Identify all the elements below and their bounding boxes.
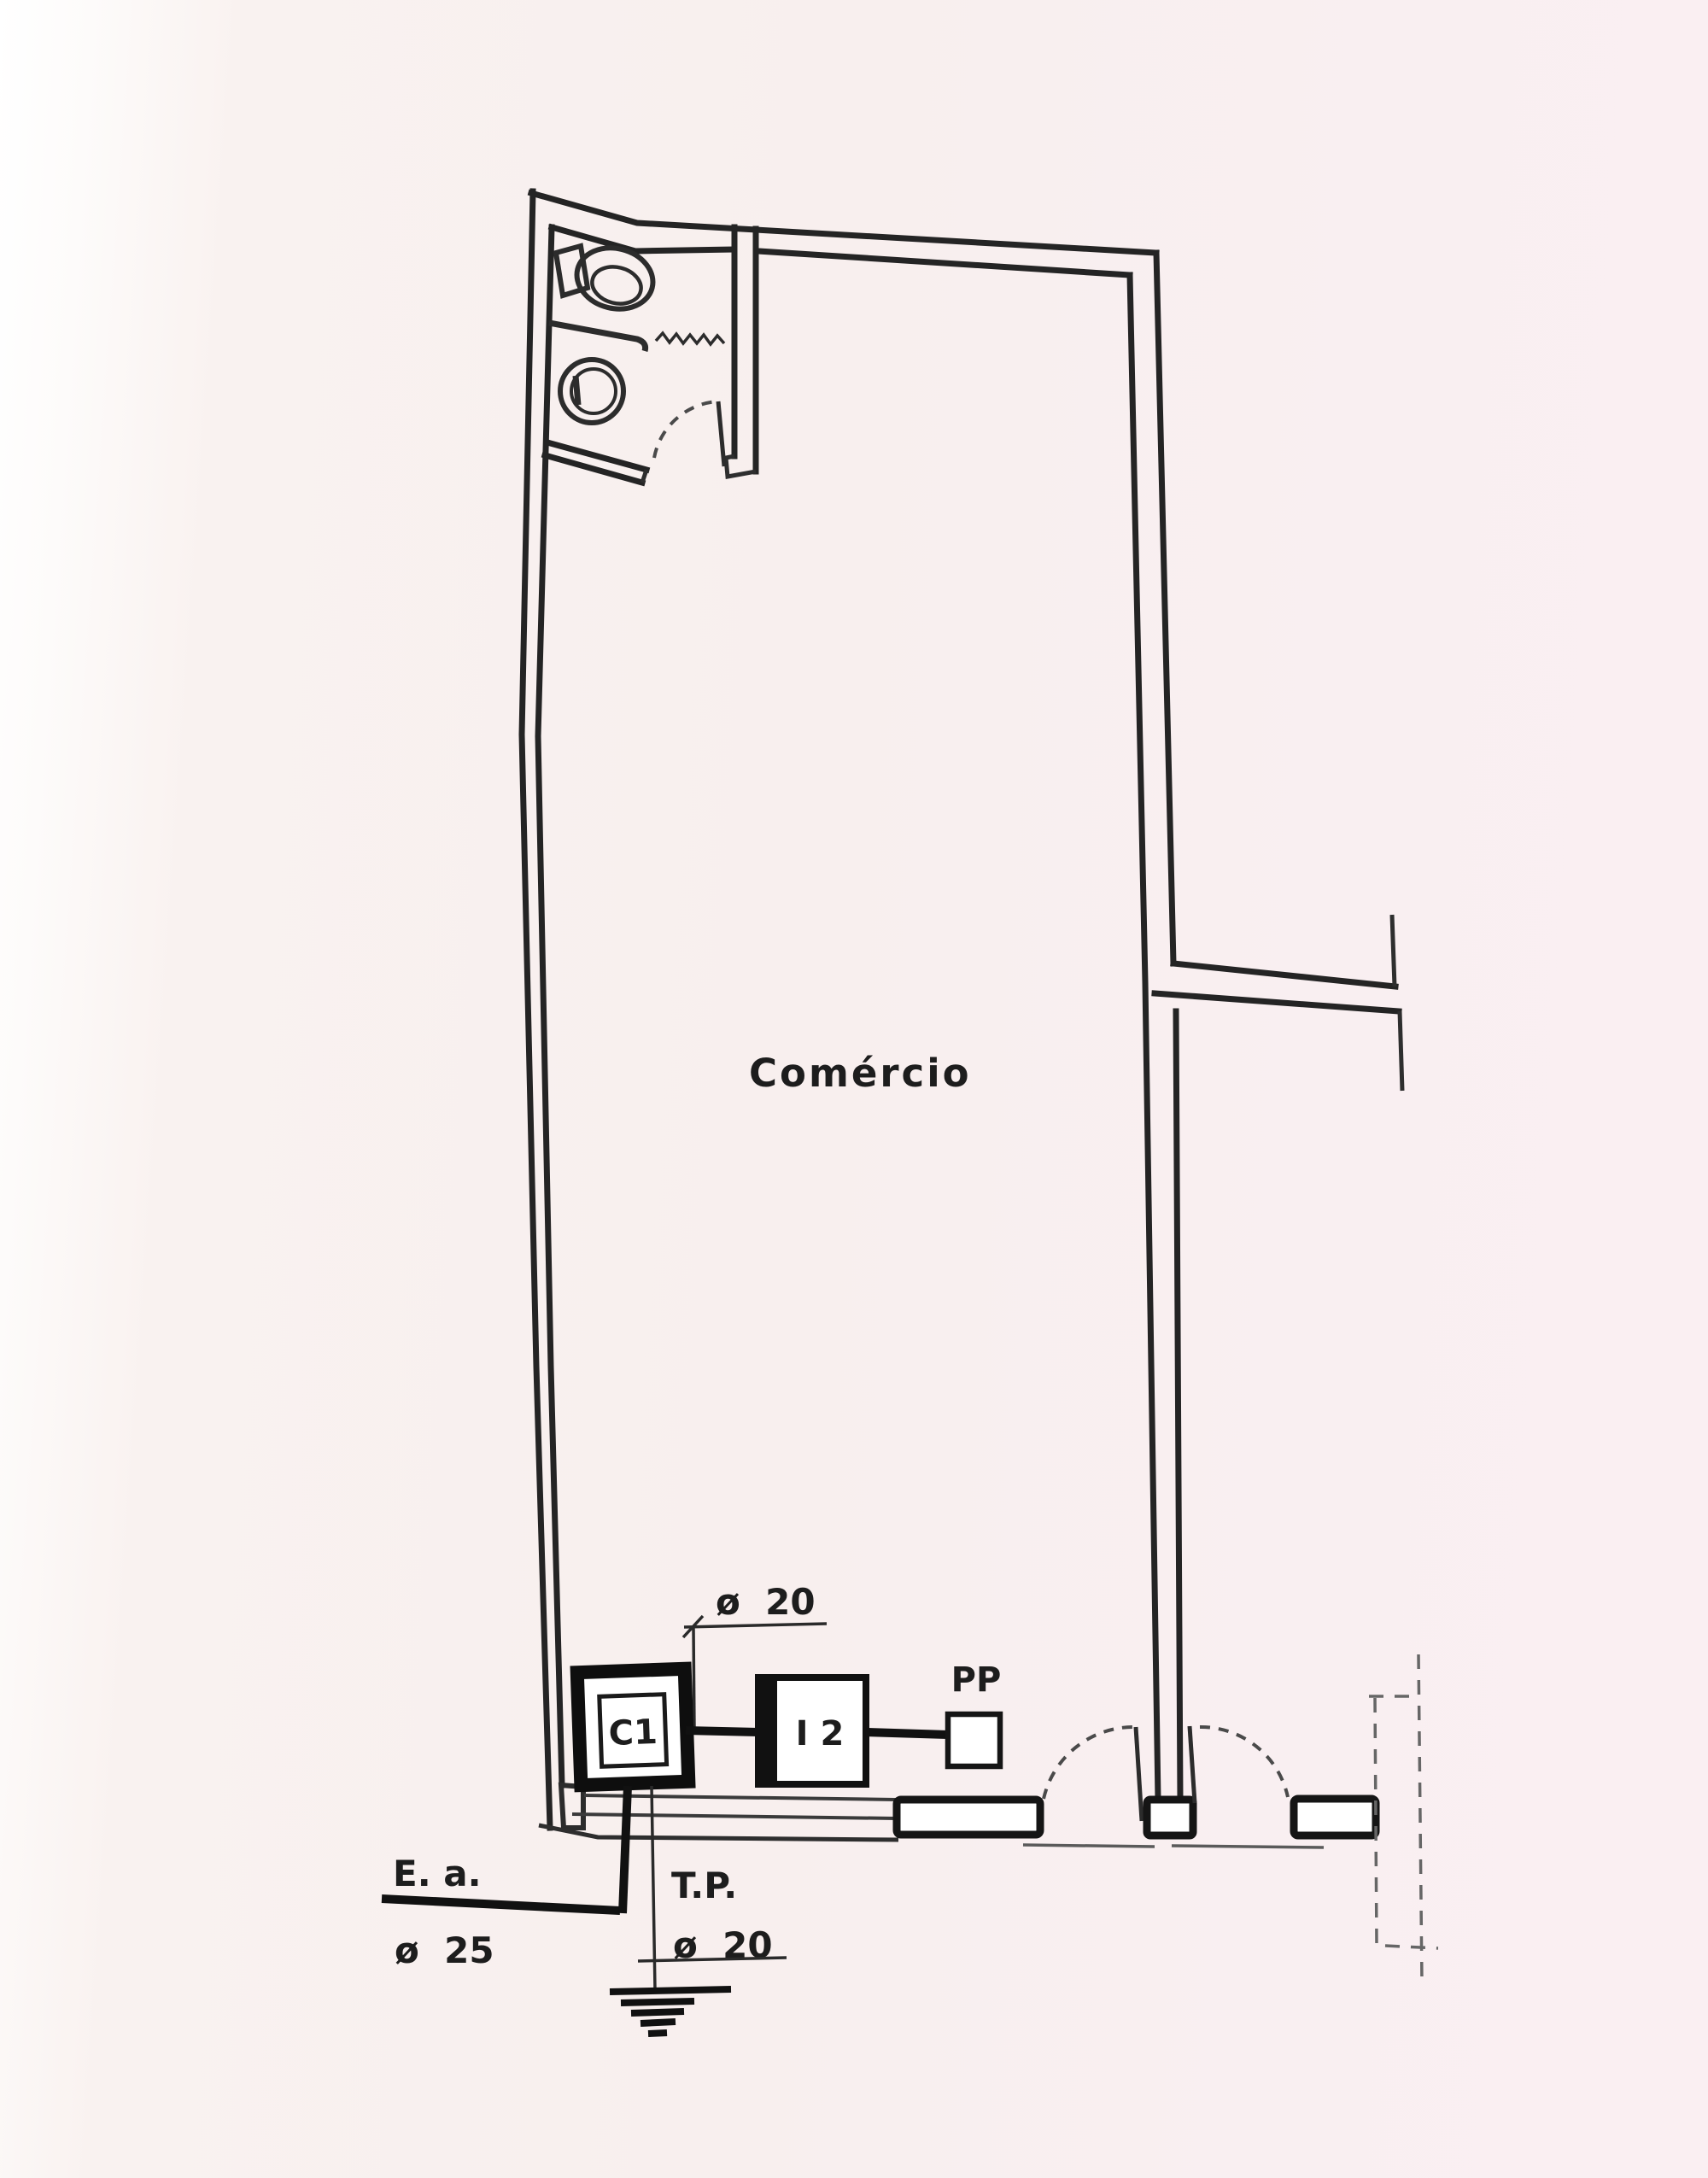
tp-label: T.P. — [671, 1865, 737, 1906]
wire-i2-pp — [866, 1732, 948, 1735]
branch-wall-end-tick-lower — [1400, 1011, 1402, 1091]
dimension-underline — [684, 1624, 827, 1627]
shopfront-bottom-edge — [539, 1825, 898, 1840]
wire-c1-i2 — [686, 1730, 758, 1732]
right-wall-outer-lower — [1176, 1011, 1180, 1800]
room-label: Comércio — [749, 1051, 972, 1096]
right-sill-panel — [1294, 1799, 1376, 1835]
c1-distribution-box: C1 — [577, 1669, 689, 1785]
bathroom-door-arc — [654, 401, 718, 458]
ground-symbol — [610, 1989, 731, 2034]
bathroom-door-leaf — [718, 401, 724, 466]
pp-label: PP — [951, 1660, 1002, 1700]
paper-background: ø 20 C1 I 2 PP E. a. ø 25 T.P. — [0, 0, 1708, 2178]
branch-wall-end-tick-upper — [1392, 915, 1395, 987]
zigzag-curtain-symbol — [656, 333, 724, 344]
c1-label: C1 — [608, 1713, 658, 1754]
partition-line — [549, 323, 646, 351]
central-door-post — [1147, 1800, 1193, 1835]
bathroom-wall-foot — [726, 456, 756, 477]
top-wall-outer — [531, 193, 1156, 253]
dimension-leader-line — [693, 1628, 694, 1730]
left-sill-panel — [897, 1800, 1040, 1835]
branch-wall-bottom — [1155, 993, 1399, 1011]
top-wall-inner-right — [758, 251, 1130, 275]
exterior-walls — [522, 191, 1402, 1828]
i2-label: I 2 — [796, 1714, 845, 1754]
ea-diameter-label: ø 25 — [395, 1929, 494, 1971]
right-door-leaf — [1190, 1726, 1195, 1803]
shopfront-glazing-line-2 — [572, 1814, 897, 1818]
branch-wall-top — [1173, 963, 1395, 987]
conduit-diameter-label: ø 20 — [716, 1581, 816, 1623]
left-door-threshold — [1023, 1845, 1155, 1847]
sink-icon — [560, 360, 623, 423]
bathroom-bottom-wall-bottom — [545, 455, 642, 483]
right-wall-inner — [1130, 275, 1158, 1800]
i2-box: I 2 — [758, 1677, 866, 1784]
right-door-threshold — [1172, 1846, 1324, 1847]
bathroom — [545, 227, 756, 483]
pp-outlet: PP — [948, 1660, 1001, 1766]
left-door-arc — [1044, 1727, 1136, 1799]
bathroom-bottom-wall-top — [547, 442, 646, 470]
left-door-leaf — [1136, 1727, 1142, 1821]
floor-plan-drawing: ø 20 C1 I 2 PP E. a. ø 25 T.P. — [0, 0, 1708, 2178]
right-door-arc — [1200, 1727, 1288, 1797]
right-wall-outer-upper — [1156, 253, 1173, 963]
ea-feed-label: E. a. — [393, 1853, 482, 1894]
